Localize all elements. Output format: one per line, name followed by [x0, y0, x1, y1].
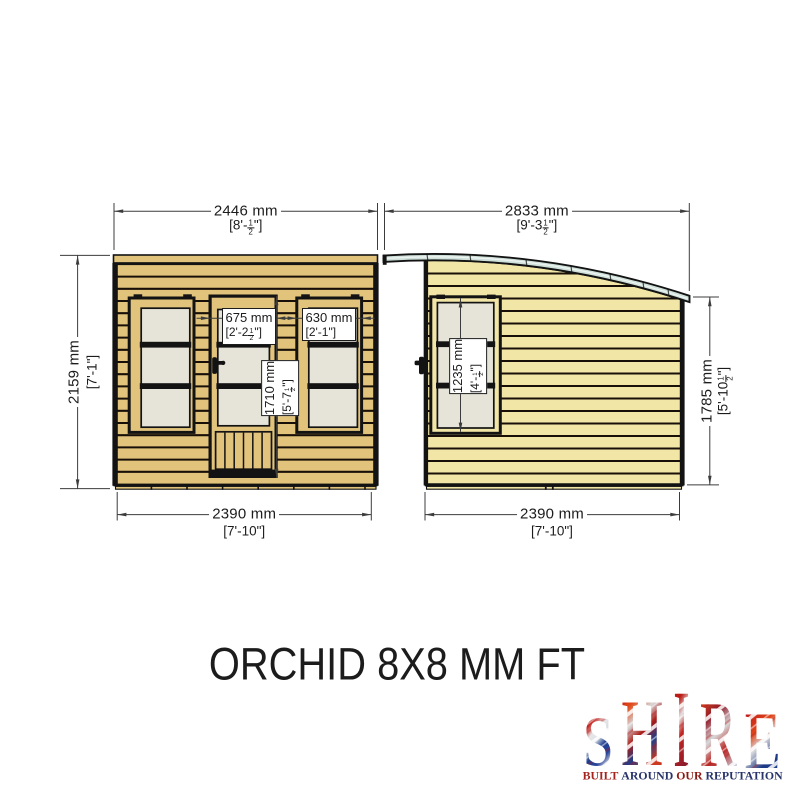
svg-text:BUILT AROUND OUR REPUTATION: BUILT AROUND OUR REPUTATION: [583, 769, 783, 783]
